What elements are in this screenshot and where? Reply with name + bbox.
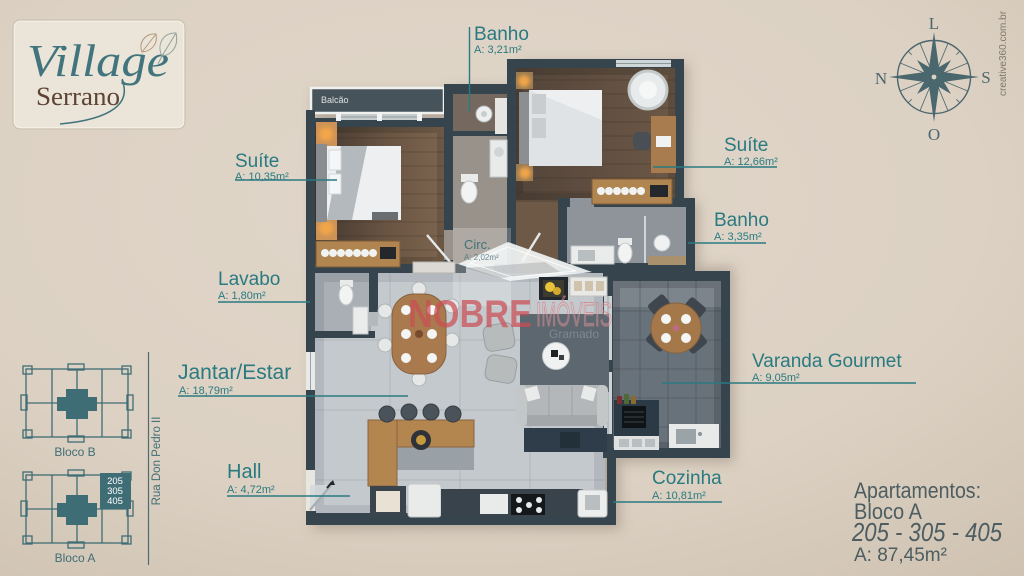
svg-text:A: 87,45m²: A: 87,45m² — [854, 545, 947, 566]
svg-text:Lavabo: Lavabo — [218, 269, 280, 290]
svg-text:Banho: Banho — [474, 24, 529, 45]
svg-text:Jantar/Estar: Jantar/Estar — [178, 361, 291, 384]
svg-text:Varanda Gourmet: Varanda Gourmet — [752, 351, 902, 372]
svg-text:Balcão: Balcão — [321, 95, 349, 105]
svg-text:N: N — [875, 69, 887, 88]
svg-text:Gramado: Gramado — [549, 327, 599, 341]
svg-text:Rua Don Pedro II: Rua Don Pedro II — [151, 417, 163, 506]
svg-text:Village: Village — [27, 35, 169, 86]
svg-text:L: L — [929, 14, 939, 33]
svg-text:A: 10,81m²: A: 10,81m² — [652, 490, 706, 502]
svg-text:Bloco B: Bloco B — [54, 445, 95, 459]
svg-text:405: 405 — [107, 496, 123, 507]
svg-text:creative360.com.br: creative360.com.br — [998, 10, 1009, 96]
svg-text:O: O — [928, 125, 940, 144]
svg-text:A: 2,02m²: A: 2,02m² — [464, 253, 499, 262]
svg-text:Circ.: Circ. — [464, 237, 491, 252]
svg-text:A: 3,21m²: A: 3,21m² — [474, 44, 522, 56]
svg-text:NOBRE: NOBRE — [408, 293, 532, 336]
svg-text:Cozinha: Cozinha — [652, 468, 722, 489]
svg-text:205 - 305 - 405: 205 - 305 - 405 — [851, 517, 1002, 547]
svg-text:A: 3,35m²: A: 3,35m² — [714, 231, 762, 243]
svg-text:Suíte: Suíte — [724, 135, 768, 156]
svg-text:Serrano: Serrano — [36, 82, 120, 111]
svg-text:A: 4,72m²: A: 4,72m² — [227, 484, 275, 496]
svg-text:A: 1,80m²: A: 1,80m² — [218, 290, 266, 302]
svg-text:A: 9,05m²: A: 9,05m² — [752, 372, 800, 384]
svg-text:Bloco A: Bloco A — [55, 551, 96, 565]
svg-text:S: S — [981, 68, 990, 87]
svg-text:Hall: Hall — [227, 461, 261, 483]
svg-text:A: 18,79m²: A: 18,79m² — [179, 385, 233, 397]
svg-text:A: 12,66m²: A: 12,66m² — [724, 156, 778, 168]
svg-text:Suíte: Suíte — [235, 151, 279, 172]
svg-text:A: 10,35m²: A: 10,35m² — [235, 171, 289, 183]
svg-text:Banho: Banho — [714, 210, 769, 231]
